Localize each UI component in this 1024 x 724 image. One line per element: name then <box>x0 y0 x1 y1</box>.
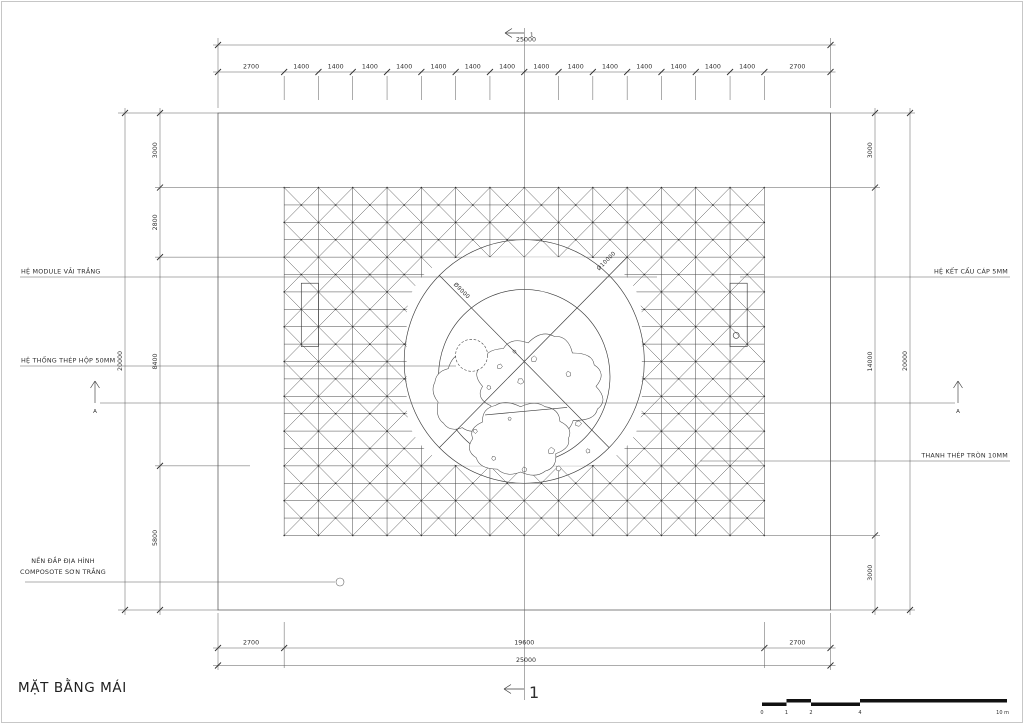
drawing-text: 5800 <box>152 530 159 546</box>
label-module-fabric: HỆ MODULE VẢI TRẮNG <box>21 266 101 276</box>
label-terrain-line1: NỀN ĐẮP ĐỊA HÌNH <box>31 555 95 565</box>
drawing-text: 1400 <box>430 64 446 71</box>
drawing-text: 10 m <box>996 710 1009 716</box>
drawing-text: 1400 <box>739 64 755 71</box>
rock-symbol <box>576 421 582 427</box>
drawing-text: 2700 <box>243 64 259 71</box>
drawing-text: 14000 <box>867 351 874 371</box>
rock-symbol <box>508 417 511 420</box>
drawing-text: 1400 <box>671 64 687 71</box>
round-tree-symbol <box>456 339 488 371</box>
drawing-text: 8400 <box>152 353 159 369</box>
drawing-text: A <box>93 409 97 415</box>
scale-bar: 012410 m <box>760 699 1009 716</box>
drawing-sheet: Ø9000Ø1000025000270014001400140014001400… <box>0 0 1024 724</box>
drawing-text: 2700 <box>243 640 259 647</box>
drawing-text: 2700 <box>789 64 805 71</box>
outer-circle-label: Ø10000 <box>596 250 618 272</box>
drawing-text: 2 <box>809 710 812 716</box>
label-terrain-line2: COMPOSOTE SƠN TRẮNG <box>20 566 106 576</box>
drawing-text: 1400 <box>568 64 584 71</box>
roof-plan-drawing: Ø9000Ø1000025000270014001400140014001400… <box>0 0 1024 724</box>
drawing-text: 1400 <box>533 64 549 71</box>
drawing-text: 1400 <box>362 64 378 71</box>
drawing-text: 2700 <box>789 640 805 647</box>
drawing-text: 19600 <box>514 640 534 647</box>
drawing-text: 1 <box>785 710 788 716</box>
label-steel-box: HỆ THỐNG THÉP HỘP 50MM <box>21 355 115 365</box>
drawing-text: 1400 <box>602 64 618 71</box>
drawing-text: 4 <box>858 710 861 716</box>
drawing-text: 1400 <box>465 64 481 71</box>
drawing-text: 25000 <box>516 657 536 664</box>
rock-symbol <box>556 466 561 471</box>
drawing-text: 3000 <box>867 142 874 158</box>
drawing-title: MẶT BẰNG MÁI <box>18 680 127 696</box>
drawing-text: 20000 <box>117 351 124 371</box>
drawing-text: 1400 <box>328 64 344 71</box>
drawing-text: 2800 <box>152 214 159 230</box>
drawing-text: 1400 <box>396 64 412 71</box>
label-round-steel: THANH THÉP TRÒN 10MM <box>920 451 1008 460</box>
drawing-text: 20000 <box>902 351 909 371</box>
drawing-text: 1 <box>530 33 534 39</box>
drawing-text: 0 <box>760 710 763 716</box>
drawing-text: 1 <box>529 683 539 702</box>
drawing-text: 1400 <box>499 64 515 71</box>
drawing-text: 3000 <box>867 565 874 581</box>
drawing-text: 1400 <box>636 64 652 71</box>
drawing-text: 1400 <box>705 64 721 71</box>
drawing-text: 3000 <box>152 142 159 158</box>
drawing-text: A <box>956 409 960 415</box>
rock-symbol <box>586 449 590 453</box>
leader-end-circle <box>336 578 344 586</box>
drawing-text: 1400 <box>293 64 309 71</box>
label-cable-structure: HỆ KẾT CẤU CÁP 5MM <box>934 266 1008 276</box>
